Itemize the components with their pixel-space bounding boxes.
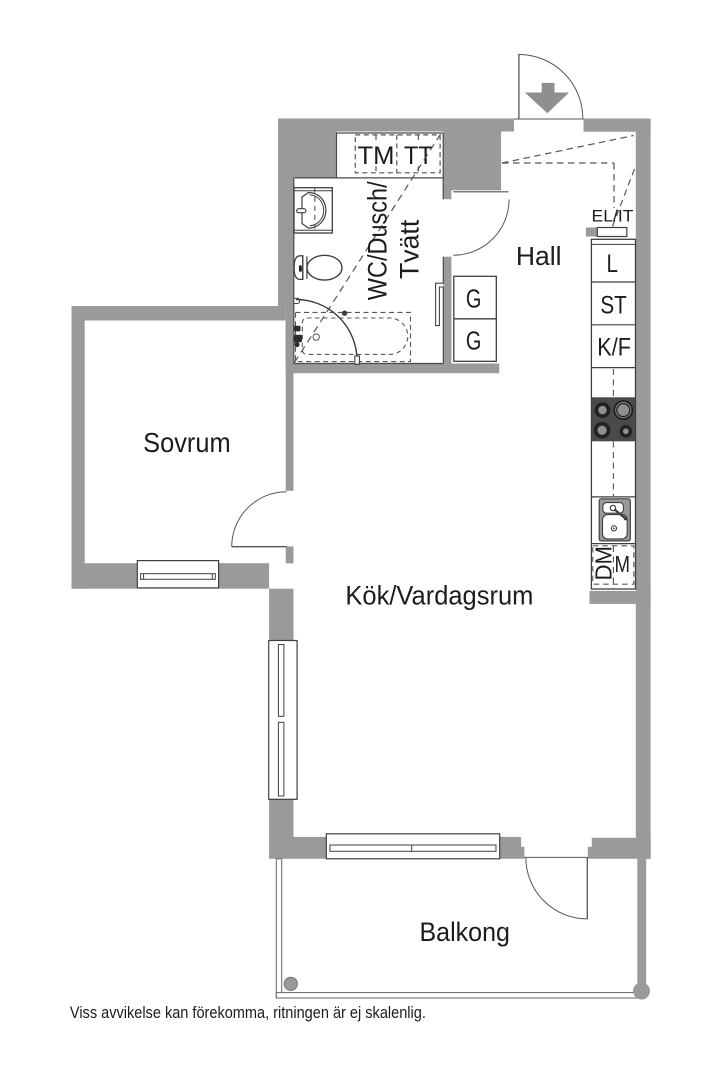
svg-text:Hall: Hall — [516, 243, 562, 271]
svg-text:TM: TM — [358, 143, 395, 170]
svg-text:L: L — [606, 250, 618, 278]
svg-text:ST: ST — [600, 292, 626, 320]
svg-text:TT: TT — [404, 143, 433, 170]
svg-text:Balkong: Balkong — [420, 917, 510, 947]
svg-text:WC/Dusch/: WC/Dusch/ — [363, 181, 393, 300]
svg-text:G: G — [466, 328, 482, 356]
svg-text:M: M — [614, 551, 630, 577]
svg-text:Tvätt: Tvätt — [395, 219, 425, 279]
svg-text:G: G — [466, 285, 482, 313]
svg-text:EL/IT: EL/IT — [592, 207, 634, 226]
svg-text:Viss avvikelse kan förekomma,: Viss avvikelse kan förekomma, ritningen … — [70, 1003, 426, 1022]
svg-text:K/F: K/F — [597, 333, 631, 361]
svg-text:Kök/Vardagsrum: Kök/Vardagsrum — [345, 581, 533, 611]
svg-text:DM: DM — [591, 546, 617, 581]
svg-text:Sovrum: Sovrum — [143, 427, 231, 458]
